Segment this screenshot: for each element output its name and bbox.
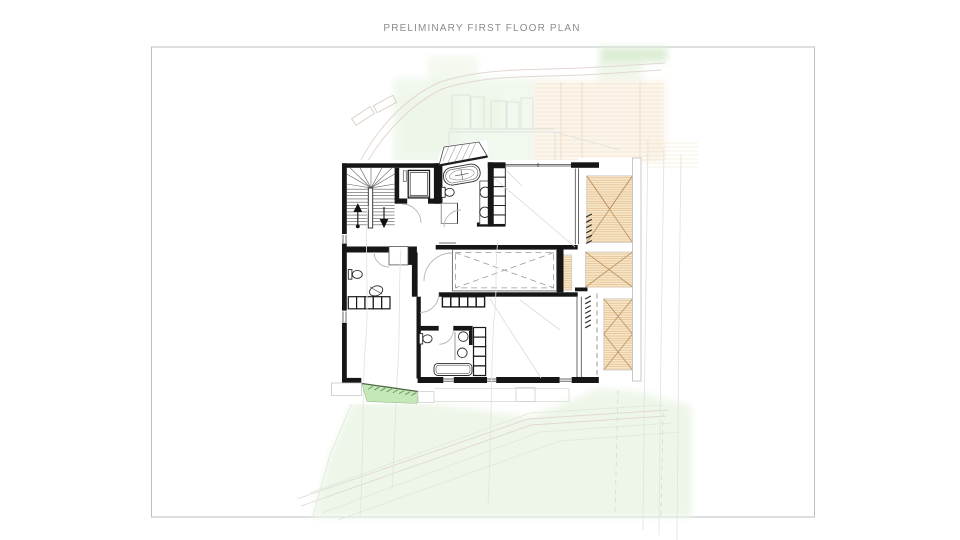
svg-text:PRELIMINARY FIRST FLOOR PLAN: PRELIMINARY FIRST FLOOR PLAN	[383, 23, 580, 34]
